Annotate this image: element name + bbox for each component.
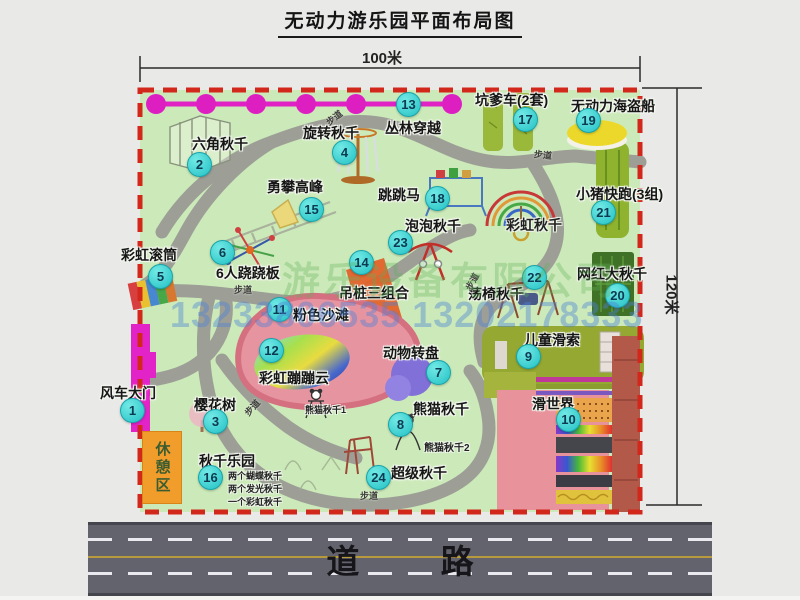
panda-swing-2-label: 熊猫秋千2: [424, 439, 470, 454]
page-title: 无动力游乐园平面布局图: [278, 6, 521, 38]
footpath-label: 步道: [533, 147, 552, 162]
footpath-label: 步道: [360, 489, 378, 502]
big-swing-icon: [592, 252, 634, 316]
hexagon-swing-icon: [170, 116, 230, 171]
rest-area: 休憩区: [142, 431, 182, 504]
rainbow-swing-label: 彩虹秋千: [506, 215, 562, 235]
swing-park-line-3: 一个彩虹秋千: [228, 496, 282, 509]
rest-area-label: 休憩区: [152, 441, 173, 495]
panda-swing-1-label: 熊猫秋千1: [305, 403, 346, 416]
swing-park-line-1: 两个蝴蝶秋千: [228, 470, 282, 483]
road: 道 路: [88, 522, 712, 596]
width-dimension-label: 100米: [362, 47, 402, 68]
swing-park-detail: 两个蝴蝶秋千 两个发光秋千 一个彩虹秋千: [228, 470, 282, 509]
road-label: 道 路: [88, 525, 712, 593]
footpath-label: 步道: [234, 283, 252, 296]
pirate-ship-icon: [567, 120, 627, 150]
swing-park-line-2: 两个发光秋千: [228, 483, 282, 496]
piggy-run-icon: [596, 142, 629, 238]
title-bar: 无动力游乐园平面布局图: [0, 6, 800, 38]
height-dimension-label: 120米: [662, 274, 683, 314]
